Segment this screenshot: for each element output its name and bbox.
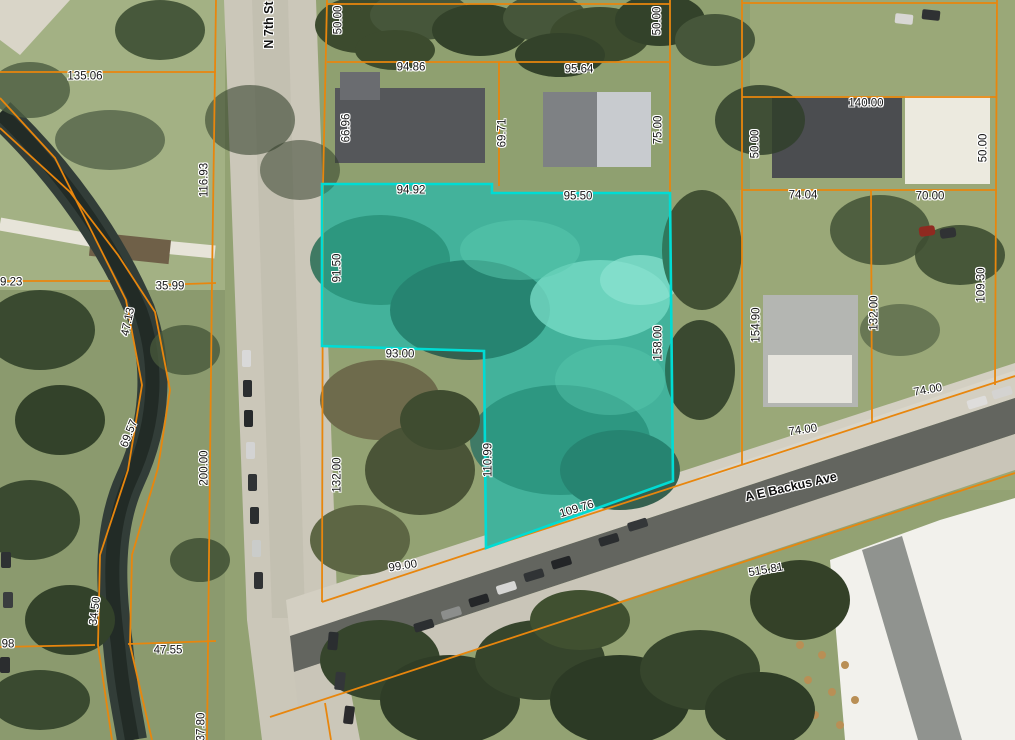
parcel-boundary-line — [871, 190, 872, 423]
map-graphics — [0, 0, 1015, 740]
aerial-map-canvas[interactable]: 135.06116.9350.0094.8666.9669.7195.6450.… — [0, 0, 1015, 740]
